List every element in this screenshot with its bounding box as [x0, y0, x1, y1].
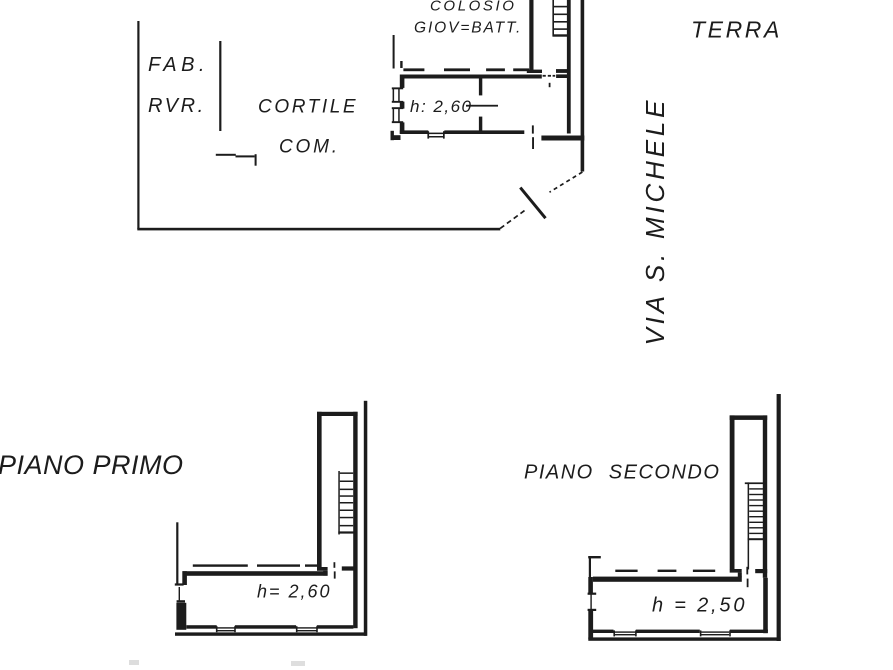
svg-text:FAB.: FAB. [148, 54, 209, 76]
svg-text:GIOV=BATT.: GIOV=BATT. [414, 20, 522, 37]
svg-text:h = 2,50: h = 2,50 [652, 595, 747, 617]
svg-text:COLOSIO: COLOSIO [430, 0, 517, 15]
svg-text:h= 2,60: h= 2,60 [257, 582, 332, 602]
svg-text:PIANO PRIMO: PIANO PRIMO [0, 450, 184, 480]
svg-text:RVR.: RVR. [148, 95, 206, 117]
svg-text:VIA S. MICHELE: VIA S. MICHELE [640, 97, 670, 346]
svg-text:h: 2,60: h: 2,60 [410, 97, 473, 116]
svg-text:COM.: COM. [279, 137, 340, 158]
svg-text:PIANO SECONDO: PIANO SECONDO [524, 462, 720, 484]
svg-text:TERRA: TERRA [691, 17, 782, 43]
svg-text:CORTILE: CORTILE [258, 97, 358, 118]
